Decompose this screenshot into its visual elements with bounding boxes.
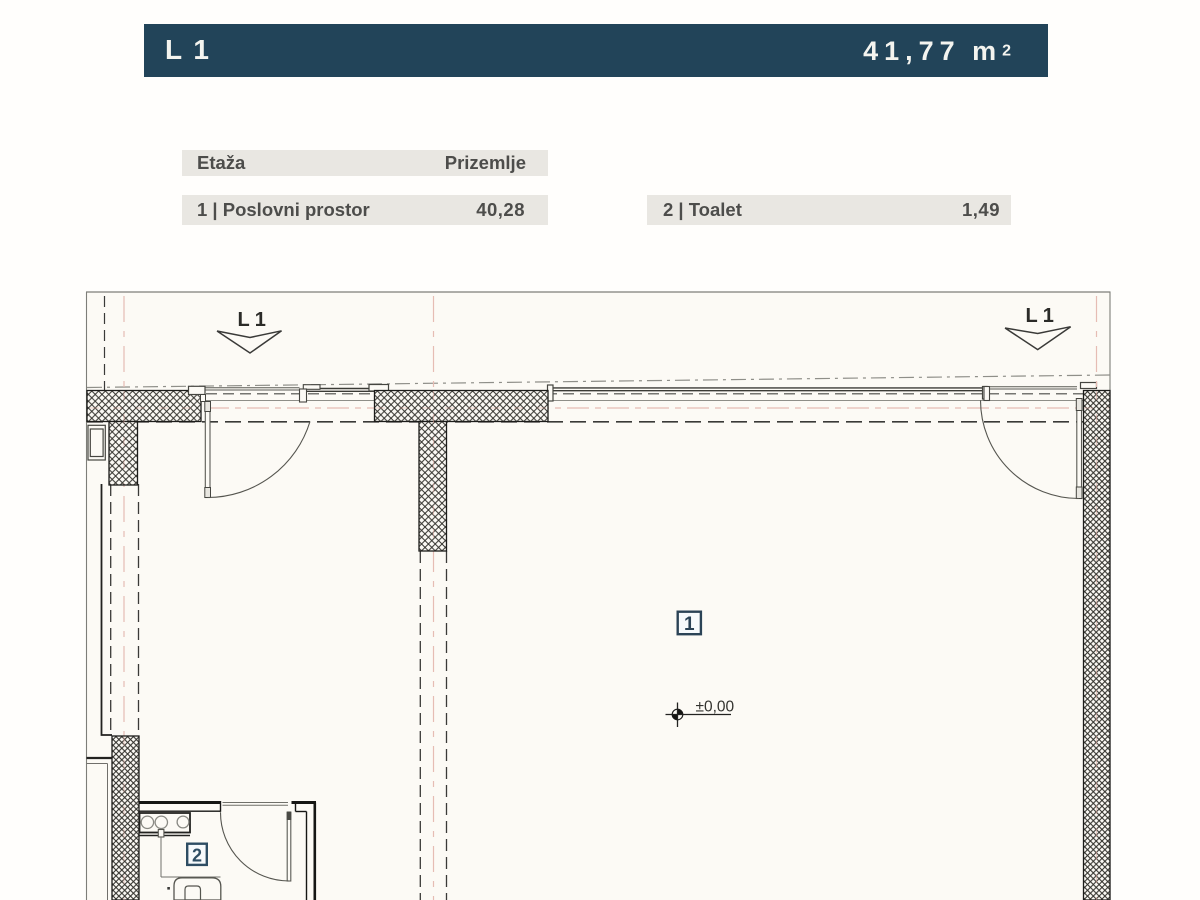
svg-text:L 1: L 1	[1026, 305, 1054, 327]
svg-text:2: 2	[192, 846, 202, 866]
svg-text:L 1: L 1	[238, 309, 266, 331]
svg-text:1: 1	[684, 614, 695, 635]
svg-text:±0,00: ±0,00	[696, 699, 735, 716]
